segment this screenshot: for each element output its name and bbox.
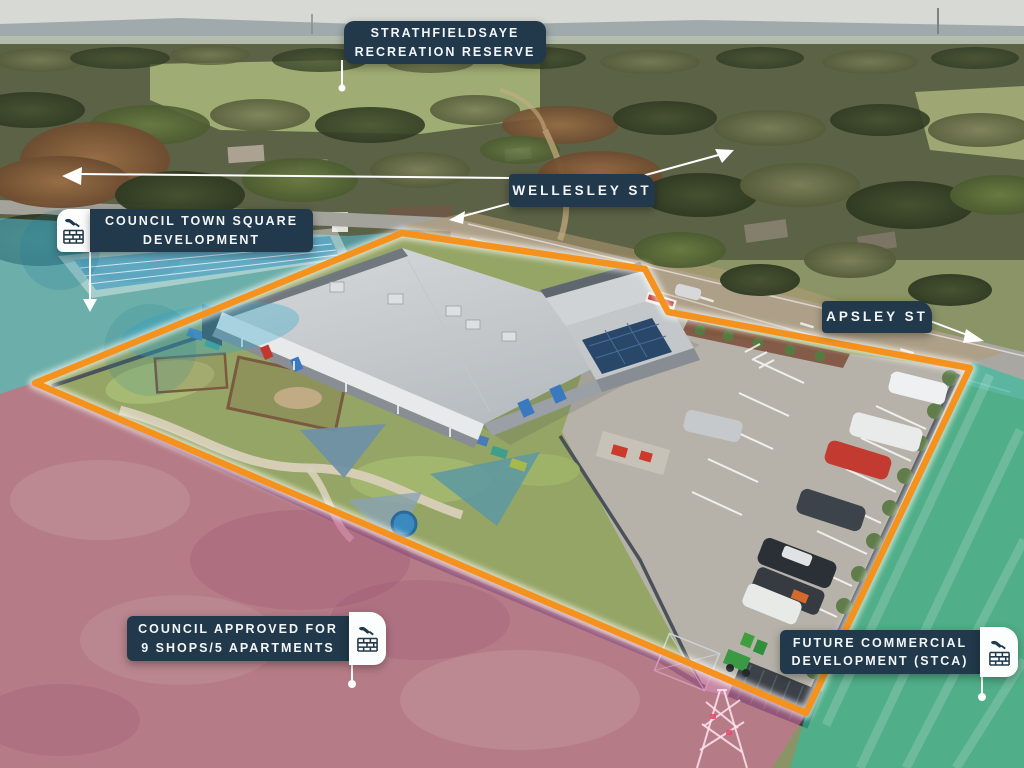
label-text: 9 SHOPS/5 APARTMENTS <box>141 639 335 657</box>
label-town-square: COUNCIL TOWN SQUARE DEVELOPMENT <box>90 209 313 252</box>
leader-dot <box>339 85 346 92</box>
label-council-approved: COUNCIL APPROVED FOR 9 SHOPS/5 APARTMENT… <box>127 616 349 661</box>
label-recreation-reserve: STRATHFIELDSAYE RECREATION RESERVE <box>344 21 546 64</box>
label-text: APSLEY ST <box>826 307 928 327</box>
label-text: DEVELOPMENT (STCA) <box>792 652 969 670</box>
label-text: RECREATION RESERVE <box>355 43 536 61</box>
leader-dot <box>348 680 356 688</box>
label-wellesley-st: WELLESLEY ST <box>509 174 655 207</box>
construction-icon <box>349 612 386 665</box>
label-apsley-st: APSLEY ST <box>822 301 932 333</box>
label-text: WELLESLEY ST <box>512 181 651 201</box>
bricks-trowel-glyph <box>356 625 379 652</box>
label-future-commercial: FUTURE COMMERCIAL DEVELOPMENT (STCA) <box>780 630 980 674</box>
construction-icon <box>980 627 1018 677</box>
bricks-trowel-glyph <box>62 217 85 244</box>
construction-icon <box>57 209 90 252</box>
label-text: STRATHFIELDSAYE <box>371 24 520 42</box>
aerial-marketing-photo: STRATHFIELDSAYE RECREATION RESERVE WELLE… <box>0 0 1024 768</box>
label-text: FUTURE COMMERCIAL <box>793 634 967 652</box>
bricks-trowel-glyph <box>988 639 1011 666</box>
label-text: COUNCIL TOWN SQUARE <box>105 212 298 230</box>
label-text: DEVELOPMENT <box>143 231 260 249</box>
leader-dot <box>978 693 986 701</box>
label-text: COUNCIL APPROVED FOR <box>138 620 338 638</box>
